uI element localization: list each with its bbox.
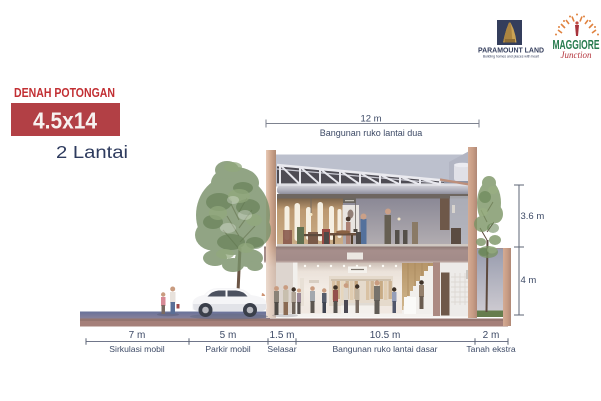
svg-text:10.5 m: 10.5 m — [370, 330, 401, 341]
svg-text:5 m: 5 m — [220, 330, 237, 341]
svg-text:Bangunan ruko lantai dua: Bangunan ruko lantai dua — [320, 128, 423, 138]
svg-text:Bangunan ruko lantai dasar: Bangunan ruko lantai dasar — [332, 344, 437, 354]
svg-text:PARAMOUNT LAND: PARAMOUNT LAND — [478, 46, 544, 55]
svg-text:4 m: 4 m — [521, 275, 537, 286]
svg-text:DENAH POTONGAN: DENAH POTONGAN — [14, 85, 115, 100]
svg-text:Parkir mobil: Parkir mobil — [205, 344, 250, 354]
svg-text:2 Lantai: 2 Lantai — [56, 142, 128, 162]
svg-text:4.5x14: 4.5x14 — [33, 108, 97, 134]
svg-text:1.5 m: 1.5 m — [269, 330, 294, 341]
svg-text:Building homes and places with: Building homes and places with heart — [483, 55, 539, 59]
svg-text:7 m: 7 m — [129, 330, 146, 341]
svg-text:Sirkulasi mobil: Sirkulasi mobil — [109, 344, 164, 354]
svg-text:2 m: 2 m — [483, 330, 500, 341]
svg-text:3.6 m: 3.6 m — [521, 211, 545, 222]
svg-text:Selasar: Selasar — [267, 344, 296, 354]
svg-text:Junction: Junction — [561, 50, 592, 60]
svg-text:12 m: 12 m — [360, 114, 381, 125]
svg-text:Tanah ekstra: Tanah ekstra — [466, 344, 515, 354]
